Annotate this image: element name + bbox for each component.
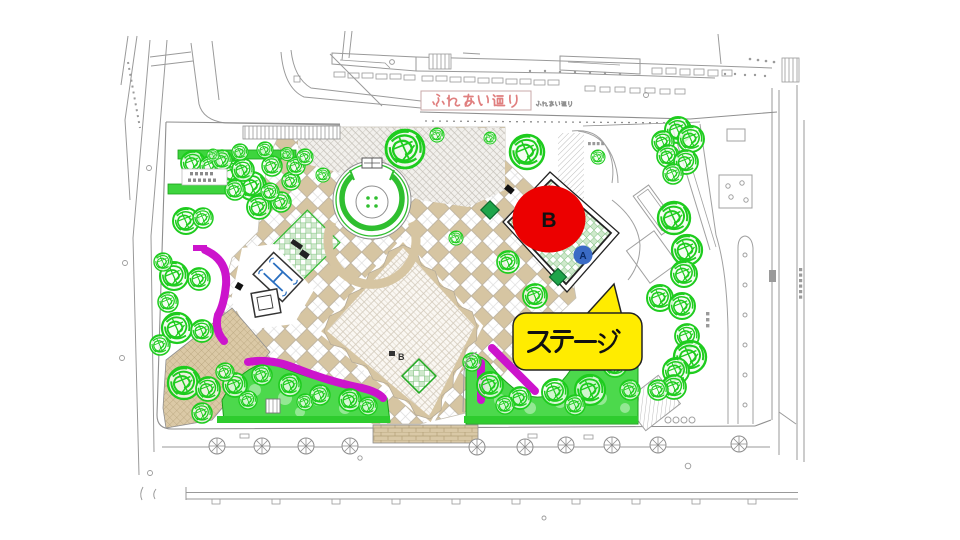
svg-text:B: B [541,209,556,232]
svg-text:B: B [398,352,405,362]
svg-text:A: A [579,251,586,262]
